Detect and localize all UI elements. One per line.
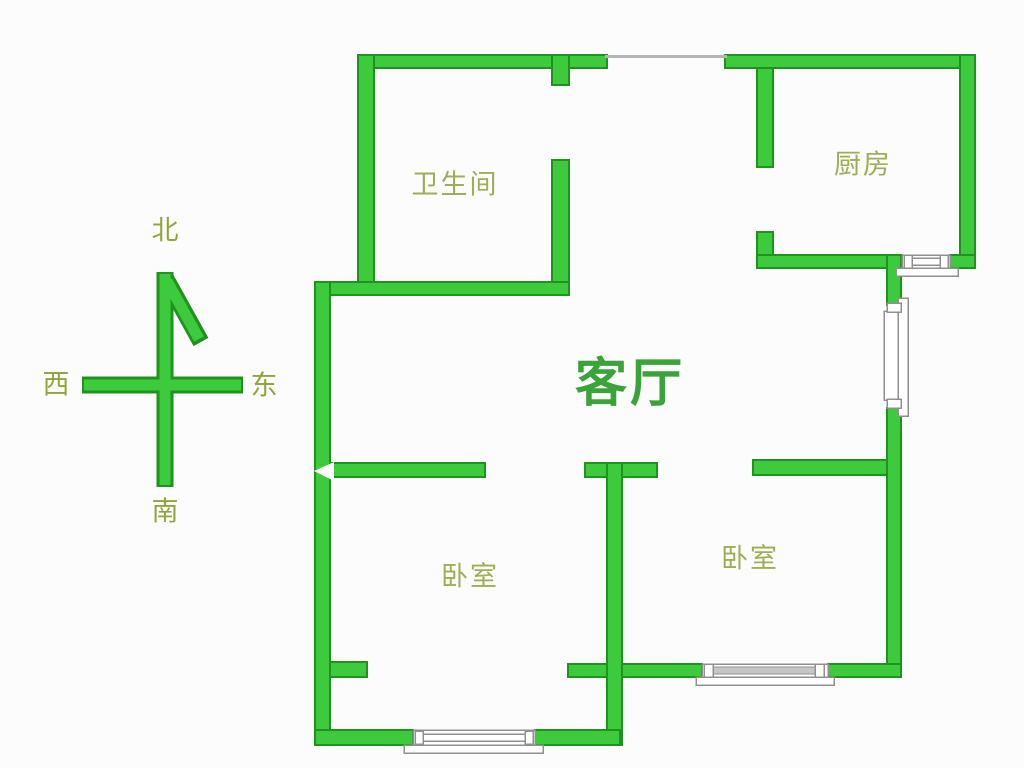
wall-segment xyxy=(358,55,374,295)
window-pane xyxy=(912,258,940,265)
room-label-kitchen: 厨房 xyxy=(834,152,892,179)
wall-segment xyxy=(315,282,330,745)
wall-segment xyxy=(330,463,485,477)
floor-plan-drawing xyxy=(0,0,1024,768)
right-wall-window-symbol xyxy=(884,298,908,416)
bedroom-right-window-symbol xyxy=(696,664,834,685)
window-cap xyxy=(940,255,948,268)
bedroom-left-window-symbol xyxy=(404,730,543,753)
window-cap xyxy=(887,303,901,312)
bedroom-left-walls xyxy=(315,463,657,745)
window-sill xyxy=(696,677,834,685)
compass-label-west: 西 xyxy=(43,372,70,399)
wall-segment xyxy=(753,460,887,475)
room-label-living-room: 客厅 xyxy=(575,358,685,410)
wall-segment xyxy=(757,255,902,268)
wall-segment xyxy=(568,664,702,677)
window-pane xyxy=(713,667,817,674)
wall-segment xyxy=(725,55,975,68)
compass-cross xyxy=(84,274,241,485)
compass-icon xyxy=(82,272,243,487)
wall-segment xyxy=(330,662,367,677)
floor-plan: 卫生间 厨房 客厅 卧室 卧室 北 南 西 东 xyxy=(0,0,1024,768)
room-label-bedroom-right: 卧室 xyxy=(721,546,779,573)
wall-segment xyxy=(607,463,622,745)
wall-segment xyxy=(828,664,901,677)
wall-segment xyxy=(757,68,773,167)
window-cap xyxy=(415,731,423,744)
wall-segment xyxy=(315,730,413,745)
window-cap xyxy=(887,399,901,408)
wall-segment xyxy=(552,55,569,85)
room-label-bedroom-left: 卧室 xyxy=(441,564,499,591)
compass-label-north: 北 xyxy=(152,218,179,245)
wall-segment xyxy=(960,55,975,268)
window-pane xyxy=(423,734,525,741)
door-opening-line xyxy=(605,55,727,58)
wall-segment xyxy=(552,160,569,295)
compass-label-south: 南 xyxy=(152,499,179,526)
wall-segment xyxy=(887,408,901,677)
wall-segment xyxy=(315,282,569,295)
wall-segment xyxy=(535,730,620,745)
window-sill xyxy=(404,745,543,753)
window-cap xyxy=(815,664,824,677)
window-cap xyxy=(525,731,533,744)
compass-label-east: 东 xyxy=(251,373,278,400)
window-sill xyxy=(896,268,958,276)
kitchen-window-symbol xyxy=(896,255,958,276)
room-label-bathroom: 卫生间 xyxy=(412,172,499,199)
window-frame xyxy=(884,311,898,400)
living-room-walls xyxy=(315,282,485,745)
wall-segment xyxy=(950,255,975,268)
window-cap xyxy=(704,664,713,677)
window-cap xyxy=(904,255,912,268)
